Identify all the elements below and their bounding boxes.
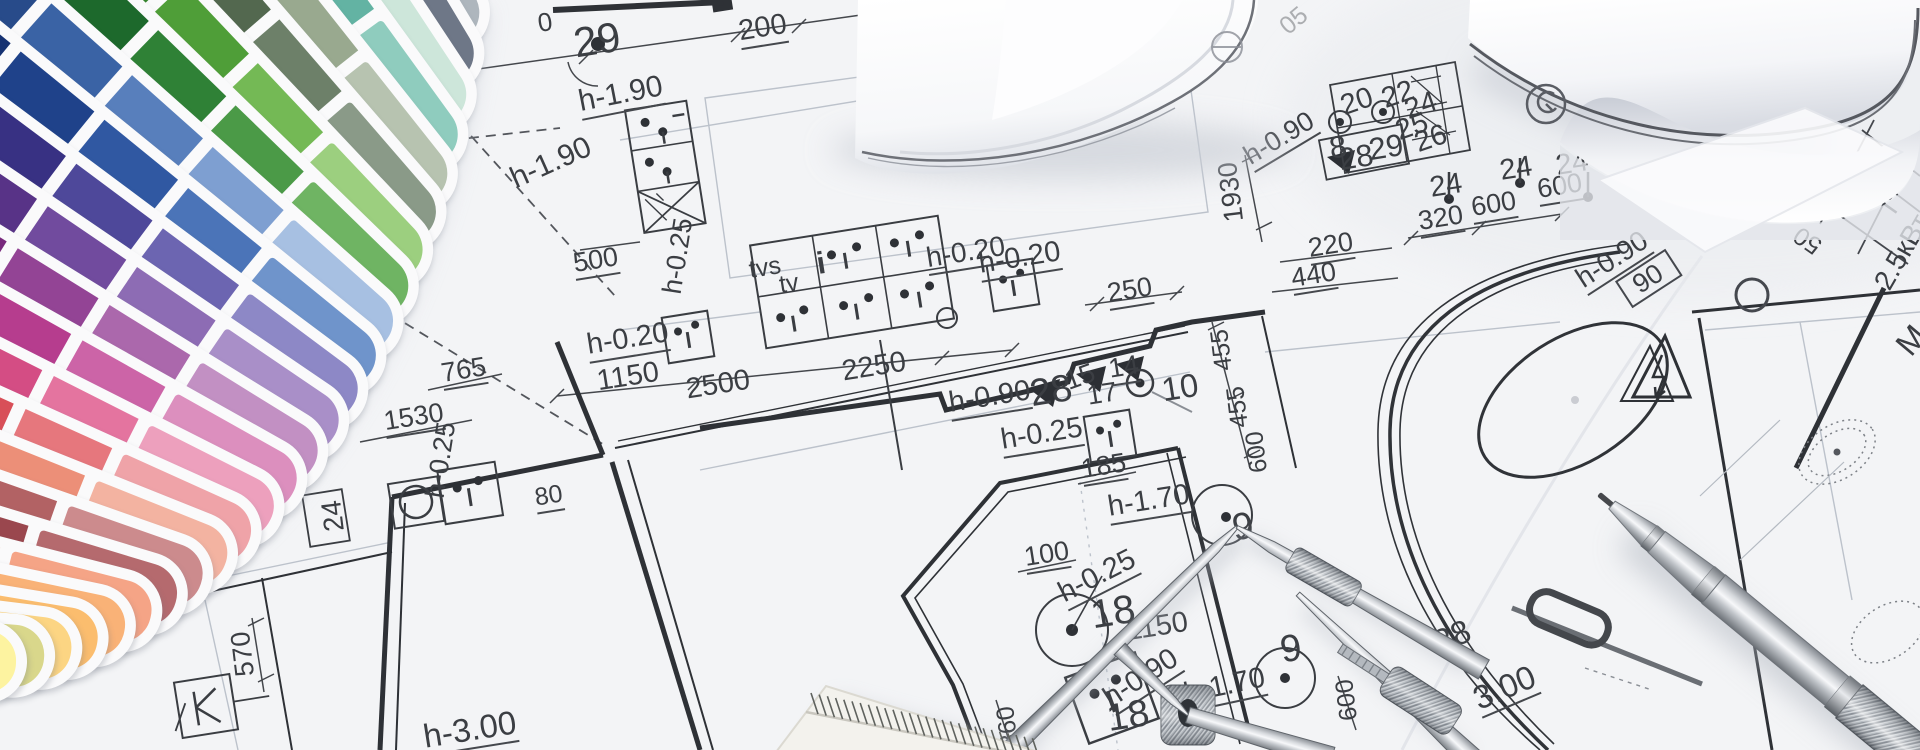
overlay-annotations-layer: 05 bbox=[0, 0, 1920, 750]
overlay-annotation: 05 bbox=[1275, 2, 1312, 39]
photo-blueprints-and-color-fan: 029h-1.90200h-1.90500h-0.25tvstvih-0.20h… bbox=[0, 0, 1920, 750]
